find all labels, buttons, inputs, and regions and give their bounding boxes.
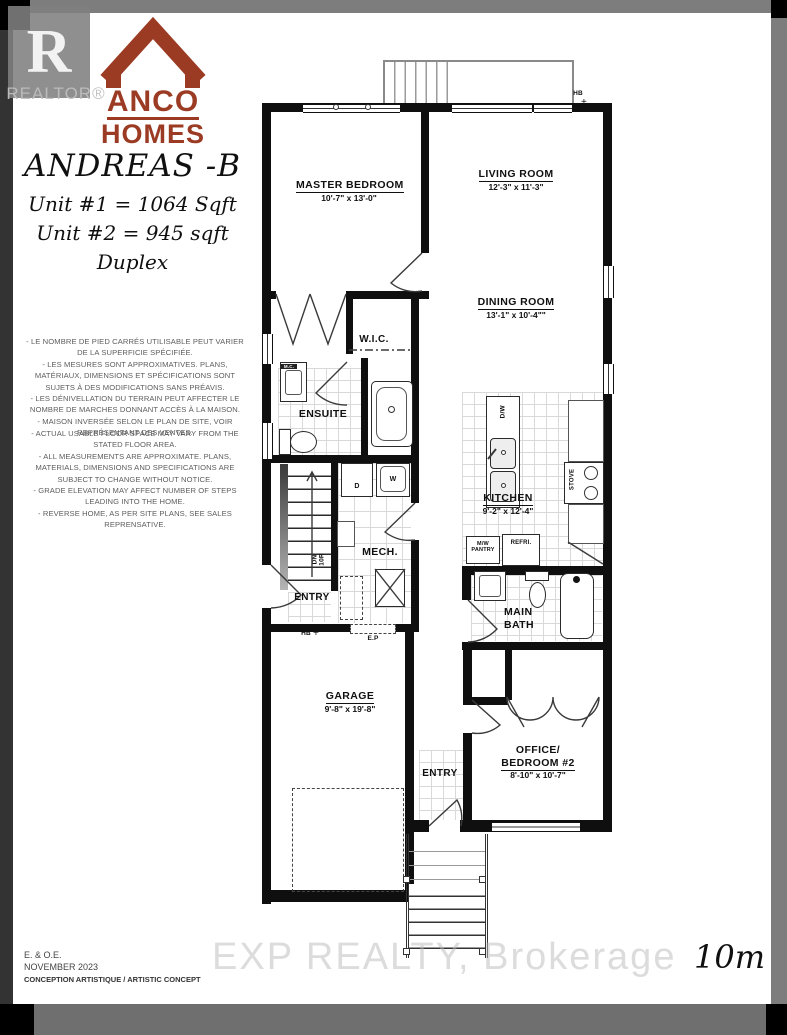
label-garage: GARAGE 9'-8" x 19'-8" — [310, 690, 390, 715]
disclaimer-english: - ACTUAL USABLE FLOOR SPACE MAY VARY FRO… — [24, 428, 246, 531]
label-dining-dims: 13'-1" x 10'-4"" — [486, 310, 546, 320]
mainbath-door — [468, 600, 497, 642]
stair-arrow — [307, 472, 317, 577]
label-entry-upper: ENTRY — [290, 592, 334, 604]
label-master-name: MASTER BEDROOM — [296, 179, 404, 193]
label-kitchen-dims: 9'-2" x 12'-4" — [483, 506, 534, 516]
label-dining: DINING ROOM 13'-1" x 10'-4"" — [468, 296, 564, 321]
frame-right — [771, 0, 787, 1035]
label-wic: W.I.C. — [352, 334, 396, 346]
island-faucet — [488, 449, 496, 459]
ensuite-door — [316, 362, 347, 405]
frame-bottom — [0, 1004, 787, 1035]
label-kitchen: KITCHEN 9'-2" x 12'-4" — [468, 492, 548, 517]
footer-concept: CONCEPTION ARTISTIQUE / ARTISTIC CONCEPT — [24, 975, 201, 984]
label-office-name2: BEDROOM #2 — [501, 757, 574, 771]
counter-corner — [568, 542, 603, 564]
model-name: ANDREAS -B — [10, 148, 255, 184]
plan-type: Duplex — [10, 250, 255, 274]
footer-date: NOVEMBER 2023 — [24, 962, 98, 972]
label-garage-dims: 9'-8" x 19'-8" — [325, 704, 376, 714]
unit1-area: Unit #1 = 1064 Sqft — [10, 192, 255, 216]
label-master-dims: 10'-7" x 13'-0" — [321, 193, 377, 203]
scale-label: 10m — [694, 938, 765, 976]
label-living-name: LIVING ROOM — [479, 168, 554, 182]
label-living-dims: 12'-3" x 11'-3" — [488, 182, 543, 192]
office-door — [472, 700, 500, 733]
footer-eoe: E. & O.E. — [24, 950, 62, 960]
unit2-area: Unit #2 = 945 sqft — [10, 221, 255, 245]
label-office-name: OFFICE/ — [516, 744, 560, 756]
label-kitchen-name: KITCHEN — [483, 492, 532, 506]
label-mech: MECH. — [358, 546, 402, 559]
label-dining-name: DINING ROOM — [478, 296, 555, 310]
label-mainbath: MAIN BATH — [504, 606, 546, 632]
master-closet-bifold — [276, 294, 346, 344]
frame-top — [0, 0, 787, 13]
frame-corner-bl — [0, 1004, 34, 1035]
builder-name-line1: ANCO — [107, 88, 199, 120]
builder-name-line2: HOMES — [88, 120, 218, 148]
label-garage-name: GARAGE — [326, 690, 375, 704]
house-icon — [98, 16, 208, 88]
master-door — [391, 253, 422, 292]
frame-corner-tr — [771, 0, 787, 18]
exp-watermark: EXP REALTY, Brokerage — [212, 936, 612, 979]
label-entry-lower: ENTRY — [418, 768, 462, 780]
entry-lower-door — [429, 800, 462, 826]
label-office: OFFICE/ BEDROOM #2 8'-10" x 10'-7" — [496, 744, 580, 782]
label-living: LIVING ROOM 12'-3" x 11'-3" — [468, 168, 564, 193]
floorplan-page: R REALTOR® ANCO HOMES ANDREAS -B Unit #1… — [0, 0, 787, 1035]
label-office-dims: 8'-10" x 10'-7" — [510, 770, 566, 780]
closet-double-doors — [507, 697, 599, 727]
frame-corner-br — [766, 1004, 787, 1035]
label-master: MASTER BEDROOM 10'-7" x 13'-0" — [296, 179, 402, 204]
mech-door — [385, 503, 415, 540]
disclaimer-french: - LE NOMBRE DE PIED CARRÉS UTILISABLE PE… — [24, 336, 246, 439]
builder-logo: ANCO HOMES — [88, 16, 218, 150]
label-ensuite: ENSUITE — [298, 408, 348, 421]
furnace-x — [375, 569, 405, 607]
realtor-r-glyph: R — [27, 17, 72, 88]
